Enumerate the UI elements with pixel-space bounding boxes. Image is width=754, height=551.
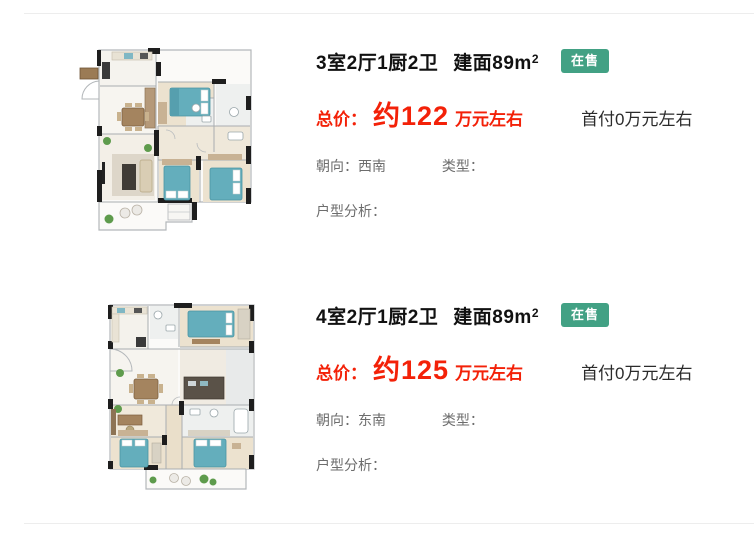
floorplan-svg-3bed: [46, 42, 268, 240]
orientation-label: 朝向：: [316, 412, 358, 428]
price-value: 约122: [373, 94, 449, 133]
floorplan-svg-4bed: [96, 297, 267, 494]
price-suffix: 万元左右: [455, 105, 523, 130]
listing-title[interactable]: 3室2厅1厨2卫建面89m2: [316, 48, 539, 75]
orientation-value: 西南: [358, 158, 386, 174]
price-label: 总价：: [316, 105, 367, 130]
listing-card-1: 3室2厅1厨2卫建面89m2 在售 总价： 约122 万元左右 首付0万元左右 …: [0, 42, 754, 297]
price-suffix: 万元左右: [455, 359, 523, 384]
orientation: 朝向：东南: [316, 412, 386, 428]
analysis-label: 户型分析：: [316, 457, 386, 473]
detail-row: 朝向：西南 类型：: [316, 156, 746, 172]
floorplan-image-2[interactable]: [96, 297, 267, 494]
down-payment: 首付0万元左右: [581, 359, 692, 384]
price-label: 总价：: [316, 359, 367, 384]
title-rooms: 3室2厅1厨2卫: [316, 53, 438, 74]
type-label: 类型：: [442, 412, 484, 428]
analysis-label: 户型分析：: [316, 203, 386, 219]
price-row: 总价： 约122 万元左右 首付0万元左右: [316, 94, 746, 124]
analysis-row: 户型分析：: [316, 455, 746, 471]
orientation: 朝向：西南: [316, 158, 386, 174]
area-superscript: 2: [532, 306, 539, 320]
area-superscript: 2: [532, 52, 539, 66]
detail-row: 朝向：东南 类型：: [316, 410, 746, 426]
floorplan-image-1[interactable]: [46, 42, 268, 240]
top-divider: [24, 13, 754, 14]
listing-title[interactable]: 4室2厅1厨2卫建面89m2: [316, 302, 539, 329]
title-area: 建面89m: [453, 307, 532, 328]
price-row: 总价： 约125 万元左右 首付0万元左右: [316, 348, 746, 378]
type-label: 类型：: [442, 158, 484, 174]
bottom-divider: [24, 523, 754, 524]
analysis-row: 户型分析：: [316, 201, 746, 217]
orientation-label: 朝向：: [316, 158, 358, 174]
type: 类型：: [442, 158, 484, 174]
type: 类型：: [442, 412, 484, 428]
status-badge: 在售: [561, 49, 609, 73]
price-value: 约125: [373, 348, 449, 387]
orientation-value: 东南: [358, 412, 386, 428]
down-payment: 首付0万元左右: [581, 105, 692, 130]
status-badge: 在售: [561, 303, 609, 327]
title-rooms: 4室2厅1厨2卫: [316, 307, 438, 328]
listing-card-2: 4室2厅1厨2卫建面89m2 在售 总价： 约125 万元左右 首付0万元左右 …: [0, 296, 754, 551]
title-area: 建面89m: [453, 53, 532, 74]
